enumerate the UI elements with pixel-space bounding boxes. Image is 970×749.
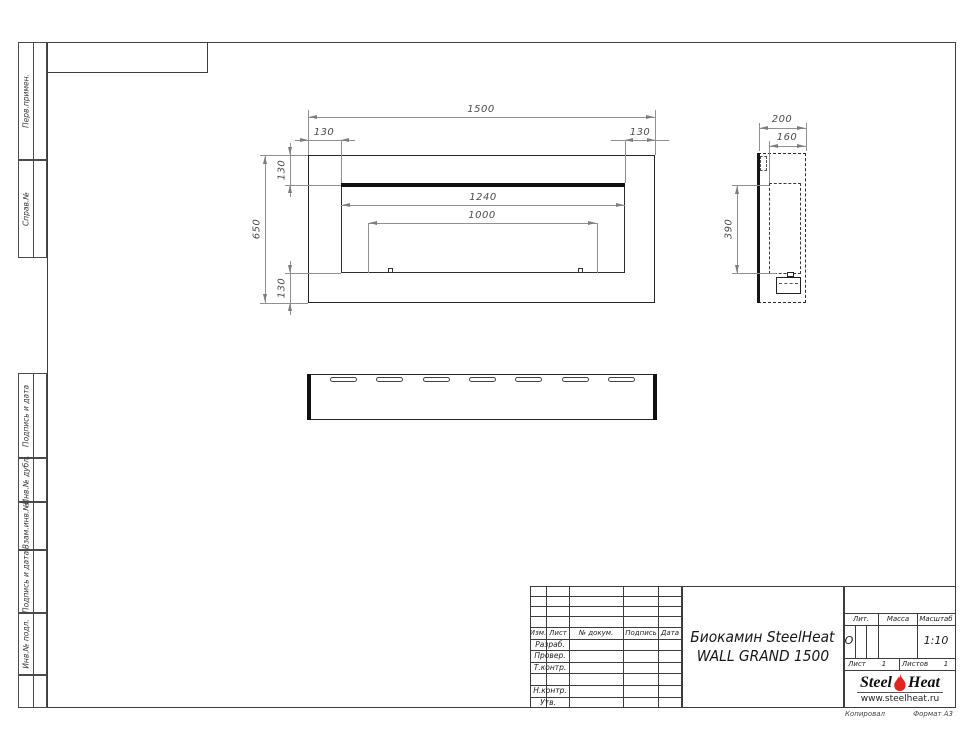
col-ndokum: № докум. (579, 629, 614, 637)
dim-inner-depth: 160 (777, 132, 798, 143)
vent-slot-row (330, 377, 635, 383)
divider (33, 43, 34, 159)
vent-slot (423, 377, 450, 382)
dim-line (611, 140, 669, 141)
arrowhead (646, 115, 654, 119)
document-title-line2: WALL GRAND 1500 (696, 647, 828, 666)
burner-tab (578, 268, 583, 273)
dim-offset-bottom: 130 (277, 278, 288, 299)
arrowhead (735, 265, 739, 273)
dim-opening-width: 1240 (469, 192, 496, 203)
vent-slot (562, 377, 589, 382)
ext-line (597, 223, 598, 273)
arrowhead (263, 156, 267, 164)
margin-section-sprav-no: Справ.№ (18, 160, 47, 258)
arrowhead (369, 221, 377, 225)
line (866, 625, 867, 658)
margin-section-podpis-data-1: Подпись и дата (18, 373, 47, 458)
line (530, 616, 681, 617)
arrowhead (735, 186, 739, 194)
dim-offset-top: 130 (277, 160, 288, 181)
arrowhead (288, 185, 292, 193)
flame-shape (894, 674, 905, 691)
line (530, 596, 681, 597)
divider (33, 374, 34, 457)
col-list: Лист (549, 629, 567, 637)
dim-inner-height: 390 (724, 219, 735, 240)
margin-label: Взам.инв.№ (22, 503, 31, 549)
divider (33, 614, 34, 674)
divider (33, 459, 34, 501)
dim-line (737, 185, 738, 273)
arrowhead (588, 221, 596, 225)
front-opening-top-edge (341, 183, 625, 187)
ext-line (260, 155, 308, 156)
row-prover: Провер. (534, 651, 565, 660)
ext-line (732, 273, 776, 274)
ext-line (285, 273, 341, 274)
logo-wordmark: Steel Heat (860, 674, 940, 692)
ext-line (368, 223, 369, 273)
burner-tab (388, 268, 393, 273)
dim-overall-width: 1500 (467, 104, 494, 115)
row-nkontr: Н.контр. (533, 686, 567, 695)
ext-line (285, 185, 341, 186)
margin-label: Подпись и дата (22, 550, 31, 612)
footer-format: Формат А3 (913, 710, 953, 718)
sheets-value: 1 (944, 660, 948, 668)
scale-value: 1:10 (924, 634, 949, 647)
side-burner-box (776, 277, 801, 294)
arrowhead (647, 138, 655, 142)
side-top-detail-box (760, 156, 767, 171)
vent-slot (469, 377, 496, 382)
ext-line (341, 140, 342, 183)
arrowhead (797, 126, 805, 130)
line (899, 658, 900, 670)
arrowhead (300, 138, 308, 142)
dim-burner-width: 1000 (468, 210, 495, 221)
scale-label: Масштаб (919, 615, 952, 623)
margin-label: Инв.№ дубл. (22, 456, 31, 505)
ext-line (625, 140, 626, 183)
footer-kopiroval: Копировал (845, 710, 885, 718)
side-inner-hidden-rect (769, 183, 801, 274)
divider (33, 676, 34, 707)
margin-section-podpis-data-2: Подпись и дата (18, 550, 47, 613)
document-title-cell: Биокамин SteelHeat WALL GRAND 1500 (682, 586, 843, 708)
line (843, 658, 956, 659)
side-front-face-edge (757, 153, 760, 303)
margin-label: Инв.№ подл. (22, 619, 31, 668)
sheet-value: 1 (882, 660, 886, 668)
side-burner-hidden-line (779, 283, 798, 284)
arrowhead (288, 303, 292, 311)
line (917, 613, 918, 658)
row-razrab: Разраб. (535, 640, 564, 649)
col-izm: Изм. (530, 629, 546, 637)
arrowhead (760, 126, 768, 130)
doc-designation-box (47, 42, 208, 73)
logo-url: www.steelheat.ru (857, 692, 943, 704)
line (569, 586, 570, 708)
logo-word-heat: Heat (908, 674, 940, 692)
arrowhead (770, 144, 778, 148)
margin-section-inv-dubl: Инв.№ дубл. (18, 458, 47, 502)
dim-overall-height: 650 (252, 219, 263, 240)
divider (33, 161, 34, 257)
document-title-line1: Биокамин SteelHeat (690, 628, 834, 647)
dim-line (368, 223, 597, 224)
dim-line (341, 205, 625, 206)
divider (33, 503, 34, 549)
side-burner-nub (787, 272, 794, 277)
margin-label: Справ.№ (22, 192, 31, 226)
arrowhead (797, 144, 805, 148)
logo-word-steel: Steel (860, 674, 892, 692)
lit-value: О (845, 634, 854, 647)
lit-label: Лит. (853, 615, 869, 623)
margin-section-vzam-inv: Взам.инв.№ (18, 502, 47, 550)
row-utv: Утв. (540, 698, 556, 707)
flame-icon (893, 674, 907, 692)
arrowhead (616, 203, 624, 207)
arrowhead (625, 138, 633, 142)
vent-slot (515, 377, 542, 382)
arrowhead (263, 294, 267, 302)
dim-offset-left: 130 (314, 127, 335, 138)
dim-offset-right: 130 (630, 127, 651, 138)
margin-section-empty (18, 675, 47, 708)
margin-label: Перв.примен. (22, 74, 31, 128)
vent-slot (330, 377, 357, 382)
arrowhead (341, 138, 349, 142)
arrowhead (342, 203, 350, 207)
ext-line (655, 110, 656, 155)
company-logo: Steel Heat www.steelheat.ru (844, 670, 956, 708)
line (530, 606, 681, 607)
line (623, 586, 624, 708)
divider (33, 551, 34, 612)
vent-slot (608, 377, 635, 382)
dim-line (265, 155, 266, 303)
bottom-left-edge (307, 374, 311, 420)
vent-slot (376, 377, 403, 382)
margin-section-inv-podl: Инв.№ подл. (18, 613, 47, 675)
arrowhead (309, 115, 317, 119)
drawing-sheet: Перв.примен. Справ.№ Подпись и дата Инв.… (0, 0, 970, 749)
line (843, 625, 956, 626)
bottom-right-edge (653, 374, 657, 420)
line (878, 613, 879, 658)
line (855, 625, 856, 658)
row-tkontr: Т.контр. (534, 663, 567, 672)
line (658, 586, 659, 708)
dim-line (308, 117, 655, 118)
sheet-label: Лист (848, 660, 866, 668)
sheets-label: Листов (902, 660, 928, 668)
line (530, 627, 681, 628)
dim-depth: 200 (772, 114, 793, 125)
mass-label: Масса (887, 615, 909, 623)
arrowhead (288, 147, 292, 155)
margin-section-perv-primen: Перв.примен. (18, 42, 47, 160)
ext-line (806, 123, 807, 151)
line (530, 673, 681, 674)
ext-line (260, 303, 308, 304)
col-data: Дата (661, 629, 679, 637)
col-podpis: Подпись (625, 629, 657, 637)
arrowhead (288, 265, 292, 273)
margin-label: Подпись и дата (22, 384, 31, 446)
line (843, 613, 956, 614)
